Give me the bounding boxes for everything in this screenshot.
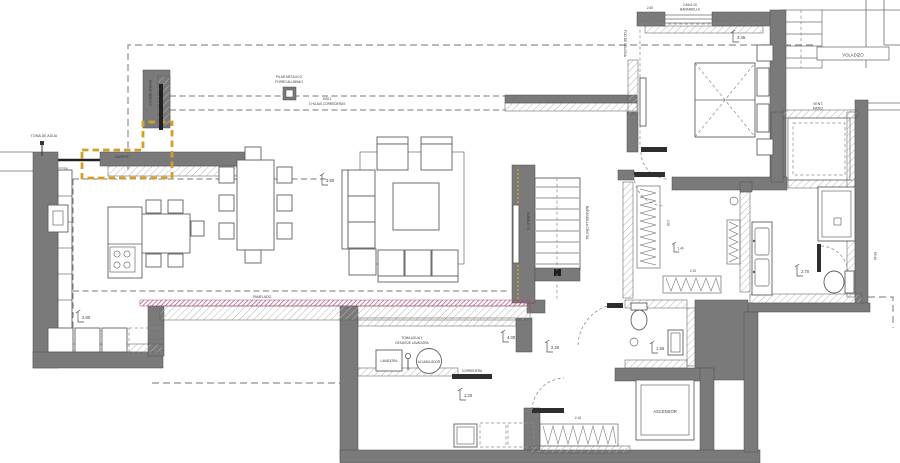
wall-entry-jamb	[524, 408, 540, 450]
chair	[277, 167, 292, 183]
fixed-lattice-label: FIJO DE CELOSIA	[623, 30, 627, 58]
toilet-tank	[631, 303, 647, 310]
toilet-tank	[845, 271, 854, 293]
level-marker-wc: 1.65	[650, 341, 665, 353]
sofa-seat	[378, 250, 404, 276]
chair	[219, 195, 234, 211]
laundry-note-1: TOMA AGUA Y	[401, 336, 423, 340]
pillar-label-2: FORRO ALUMINIO	[275, 80, 303, 84]
hall-door-swing	[578, 306, 607, 346]
wc-room	[578, 303, 683, 355]
cladding-label: REVESTIMIENTO	[148, 80, 152, 106]
level-marker-bath: 2.70	[795, 264, 810, 276]
railing-label: BARANDILLA	[680, 8, 701, 12]
chair	[219, 167, 234, 183]
sofa-seat	[348, 170, 375, 196]
patio-box	[788, 118, 850, 180]
nightstand	[757, 45, 773, 61]
closet-length-dim: 2.10	[690, 269, 696, 273]
chair	[146, 200, 161, 213]
reference-tag-circle	[730, 197, 738, 205]
patio-label-2: PATIO	[813, 107, 823, 111]
bath-door-swing	[821, 246, 848, 272]
nightstand	[757, 139, 773, 155]
reference-tag-circle	[630, 338, 638, 346]
kitchen	[48, 170, 204, 352]
patio-label-1: VENT.	[813, 102, 823, 106]
wall-southeast	[744, 312, 758, 452]
water-intake-label: TOMA DE AGUA	[31, 134, 58, 138]
living-area	[342, 137, 519, 282]
kitchen-counter	[58, 170, 72, 332]
hanger-zigzag	[640, 189, 656, 265]
panelado-magenta-band	[140, 300, 530, 306]
sofa-seat	[348, 196, 375, 222]
voladizo-tag: VOLADIZO	[817, 47, 889, 60]
level-marker-closet: 1.40	[672, 242, 684, 252]
patio-inner-dashed	[793, 123, 845, 175]
railing-dim-label: 2.84x1.00	[683, 3, 697, 7]
voladizo-label: VOLADIZO	[842, 53, 864, 58]
bench-unit	[48, 328, 73, 352]
floor-tray	[454, 424, 477, 447]
svg-text:1.40: 1.40	[678, 247, 684, 251]
window-dim-label: 2.60	[647, 6, 653, 10]
wall-kitchen-south	[33, 352, 163, 368]
level-marker-kitchen: 2.80	[76, 310, 91, 322]
wall-vestidor-jamb	[618, 170, 634, 180]
wall-utility-east-jamb	[516, 318, 532, 352]
laundry-note-2: DESAGÜE LAVADORA	[395, 341, 429, 345]
svg-text:1.20: 1.20	[464, 393, 473, 398]
chair	[146, 254, 161, 267]
door-type-label-1: HS01	[323, 97, 331, 101]
wall-east	[855, 100, 868, 310]
wall-elevator-east	[700, 368, 714, 458]
bath-door-leaf	[817, 244, 821, 272]
panelado-label: PANELADO	[253, 295, 272, 299]
stair-flight	[535, 178, 580, 270]
svg-text:2.70: 2.70	[801, 269, 810, 274]
bedroom-door-leaf	[641, 147, 667, 152]
bench-unit	[75, 328, 100, 352]
stair-railing-label: BARANDILLA CRISTAL	[585, 206, 589, 240]
hanger-zigzag	[666, 278, 720, 291]
bedroom	[640, 24, 773, 179]
dining-table	[237, 160, 274, 250]
wall-utility-west	[340, 306, 358, 460]
wardrobe-dim: 2.16	[575, 416, 581, 420]
washer-label: LAVADORA	[381, 359, 399, 363]
main-staircase	[535, 178, 580, 300]
elevator: ASCENSOR	[636, 380, 694, 440]
svg-text:3.50: 3.50	[326, 178, 335, 183]
wall-bedroom-south	[672, 177, 787, 190]
master-bathroom	[752, 187, 855, 295]
level-marker-living: 3.50	[320, 173, 335, 185]
sofa-seat	[421, 144, 452, 170]
svg-text:4.00: 4.00	[507, 335, 516, 340]
closet-door-swing	[634, 175, 665, 206]
wall-north-band	[505, 95, 637, 103]
hanger-zigzag	[543, 426, 616, 444]
site-dashed-line-southeast	[868, 297, 893, 328]
media-wall-label: MUEBLE TV	[526, 212, 530, 231]
radiator	[640, 78, 646, 126]
hanger-zigzag	[729, 222, 738, 262]
chair	[219, 223, 234, 239]
svg-text:1.65: 1.65	[656, 346, 665, 351]
pillar-label-1: PILAR METALICO	[276, 75, 303, 79]
bench-unit	[102, 328, 127, 352]
sofa-arm	[342, 170, 348, 249]
pillow	[757, 68, 769, 96]
floor-plan-canvas: VOLADIZO	[0, 0, 900, 463]
chair	[191, 221, 204, 236]
level-marker-entry: 1.20	[458, 388, 473, 400]
south-wardrobe	[540, 424, 618, 446]
door-type-label-2: 3 HOJAS CORREDERAS	[309, 102, 346, 106]
chair	[168, 254, 183, 267]
sliding-door-label: CORREDERA	[462, 369, 483, 373]
chair	[245, 250, 261, 263]
sofa-seat	[432, 250, 458, 276]
lateral-dim: 65.46	[873, 252, 877, 260]
sofa-seat	[348, 222, 375, 248]
sink-icon	[668, 330, 683, 355]
floor-plan-svg: VOLADIZO	[0, 0, 900, 463]
closet-door-leaf	[634, 172, 665, 177]
sofa-corner-seat	[349, 249, 376, 275]
chair	[168, 200, 183, 213]
closet-rack	[663, 276, 721, 293]
murete-label: MURETE	[115, 155, 128, 159]
chair	[277, 223, 292, 239]
wall-vestidor-bath-jamb	[740, 182, 752, 192]
elevator-label: ASCENSOR	[653, 409, 677, 414]
stub-frame-bar	[159, 84, 163, 130]
toilet-icon	[824, 271, 844, 293]
svg-text:3.45: 3.45	[737, 35, 746, 40]
person-figure-head	[405, 353, 410, 358]
toilet-icon	[631, 310, 647, 330]
heater-label: ACUMULADOR	[418, 360, 441, 364]
wall-elevator-north	[615, 368, 711, 381]
stair-arrow-base	[554, 269, 561, 276]
chair	[245, 147, 261, 160]
coffee-table	[393, 183, 439, 230]
wall-bath-south	[742, 303, 870, 312]
closet-width-dim: 2.50	[666, 220, 670, 226]
svg-text:2.20: 2.20	[551, 345, 560, 350]
entry-door-leaf	[532, 408, 564, 413]
sliding-door-bar	[452, 374, 492, 379]
shower	[818, 187, 855, 241]
wardrobe-box	[540, 424, 618, 446]
sofa-seat	[377, 144, 408, 170]
entry-hall	[454, 378, 564, 447]
level-marker-hall: 2.20	[545, 340, 560, 352]
pillow	[757, 104, 769, 132]
wall-bedroom-west-low	[627, 112, 638, 152]
level-marker-utility: 4.00	[501, 330, 516, 342]
entry-door-swing	[532, 378, 564, 410]
sofa-seat	[405, 250, 431, 276]
hall-door-leaf	[607, 303, 623, 308]
svg-text:2.80: 2.80	[82, 315, 91, 320]
kitchen-tall-unit	[48, 205, 68, 232]
tv-unit	[513, 205, 519, 263]
water-intake-icon	[40, 141, 44, 145]
chair	[277, 195, 292, 211]
cabinet-dashed	[480, 423, 506, 447]
